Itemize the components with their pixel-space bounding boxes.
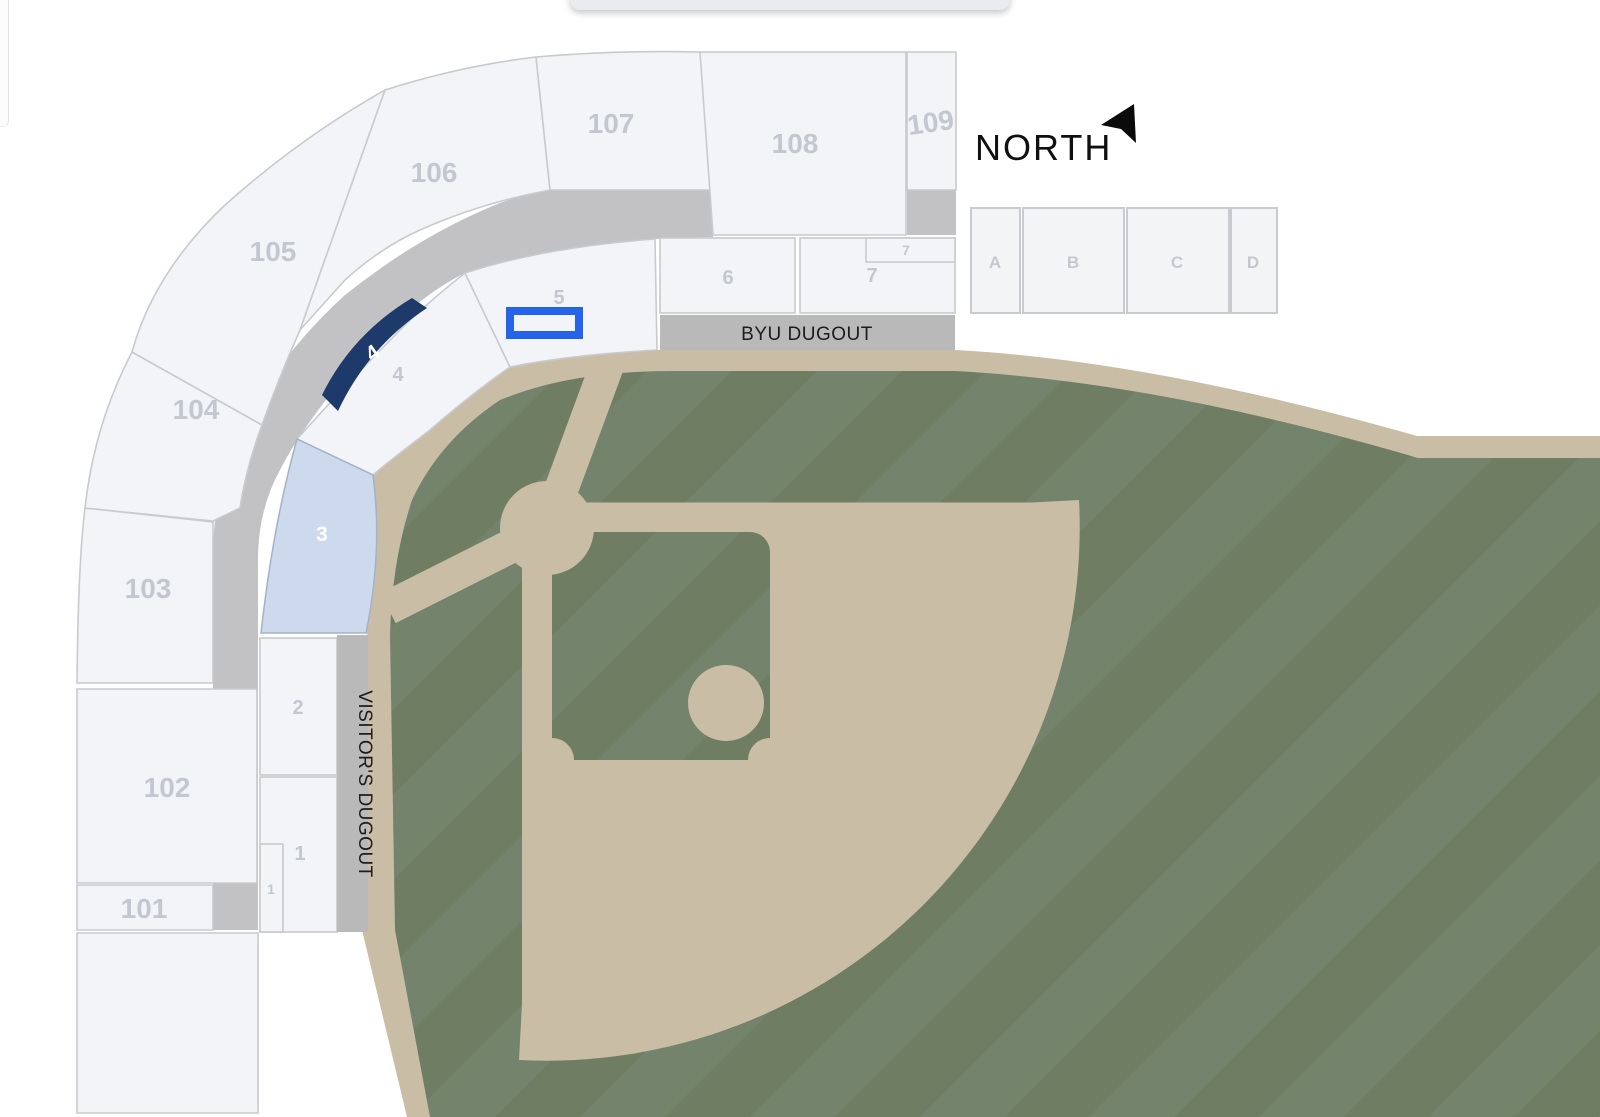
section-109-label: 109 bbox=[905, 104, 956, 141]
side-panel-edge bbox=[0, 0, 9, 127]
suites: A B C D bbox=[971, 208, 1277, 313]
section-105-label: 105 bbox=[250, 236, 297, 267]
section-2-label: 2 bbox=[292, 697, 303, 719]
section-108-label: 108 bbox=[772, 128, 819, 159]
suite-d-label: D bbox=[1247, 253, 1259, 272]
section-7-label: 7 bbox=[866, 265, 877, 287]
visitor-dugout-label: VISITOR'S DUGOUT bbox=[354, 690, 375, 878]
suite-b-label: B bbox=[1067, 253, 1079, 272]
section-102-label: 102 bbox=[144, 772, 191, 803]
section-unnumbered[interactable] bbox=[77, 933, 258, 1113]
section-1-small-label: 1 bbox=[267, 881, 275, 897]
suite-c-label: C bbox=[1171, 253, 1183, 272]
section-3-label: 3 bbox=[316, 523, 328, 546]
section-4-label: 4 bbox=[392, 364, 404, 386]
section-6-label: 6 bbox=[722, 267, 733, 289]
section-7-small[interactable] bbox=[866, 238, 955, 262]
section-101-label: 101 bbox=[121, 893, 168, 924]
compass-label: NORTH bbox=[975, 127, 1112, 168]
section-103-label: 103 bbox=[125, 573, 172, 604]
home-plate-circle bbox=[500, 481, 594, 575]
section-106-label: 106 bbox=[411, 157, 458, 188]
section-5-label: 5 bbox=[553, 287, 564, 309]
seat-map: 101 102 103 104 105 106 107 108 109 bbox=[0, 0, 1600, 1117]
selected-seat-marker[interactable] bbox=[510, 311, 579, 335]
pitcher-mound bbox=[688, 665, 764, 741]
section-7-small-label: 7 bbox=[902, 242, 910, 258]
section-1-label: 1 bbox=[294, 843, 305, 865]
suite-a-label: A bbox=[989, 253, 1001, 272]
byu-dugout-label: BYU DUGOUT bbox=[741, 324, 873, 345]
top-toolbar-fragment bbox=[570, 0, 1010, 10]
section-107-label: 107 bbox=[588, 108, 635, 139]
section-104-label: 104 bbox=[173, 394, 220, 425]
